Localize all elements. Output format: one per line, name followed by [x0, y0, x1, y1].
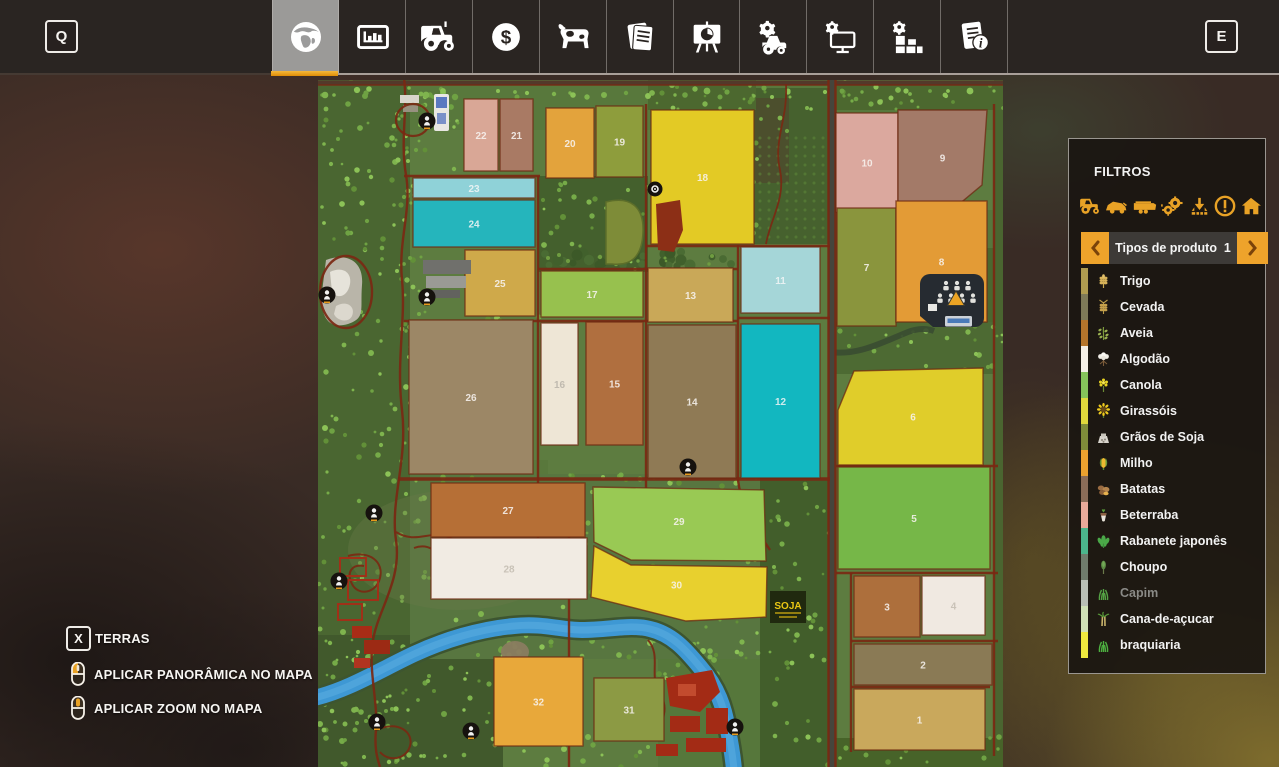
svg-text:27: 27 [502, 506, 514, 517]
svg-text:21: 21 [511, 131, 523, 142]
svg-text:17: 17 [586, 290, 598, 301]
svg-text:29: 29 [673, 517, 685, 528]
svg-text:20: 20 [564, 139, 576, 150]
svg-text:19: 19 [614, 138, 626, 149]
svg-text:24: 24 [468, 220, 480, 231]
svg-text:1: 1 [917, 716, 923, 727]
svg-text:12: 12 [775, 397, 787, 408]
svg-text:10: 10 [861, 159, 873, 170]
svg-text:3: 3 [884, 603, 890, 614]
svg-text:5: 5 [911, 514, 917, 525]
svg-text:7: 7 [864, 263, 870, 274]
svg-text:13: 13 [685, 291, 697, 302]
svg-text:9: 9 [940, 154, 946, 165]
svg-text:31: 31 [623, 706, 635, 717]
svg-text:$: $ [501, 27, 512, 48]
svg-text:22: 22 [475, 131, 487, 142]
svg-text:4: 4 [951, 602, 957, 613]
svg-text:8: 8 [939, 258, 945, 269]
svg-text:28: 28 [503, 565, 515, 576]
svg-text:i: i [979, 35, 983, 50]
svg-text:SOJA: SOJA [774, 601, 801, 612]
svg-text:23: 23 [468, 184, 480, 195]
svg-text:6: 6 [910, 413, 916, 424]
svg-text:16: 16 [554, 380, 566, 391]
svg-text:18: 18 [697, 173, 709, 184]
svg-text:30: 30 [671, 581, 683, 592]
svg-text:14: 14 [686, 398, 698, 409]
svg-text:11: 11 [775, 276, 786, 287]
svg-text:26: 26 [465, 393, 477, 404]
svg-text:25: 25 [494, 279, 506, 290]
svg-text:32: 32 [533, 698, 545, 709]
svg-text:2: 2 [920, 661, 926, 672]
svg-text:15: 15 [609, 380, 621, 391]
